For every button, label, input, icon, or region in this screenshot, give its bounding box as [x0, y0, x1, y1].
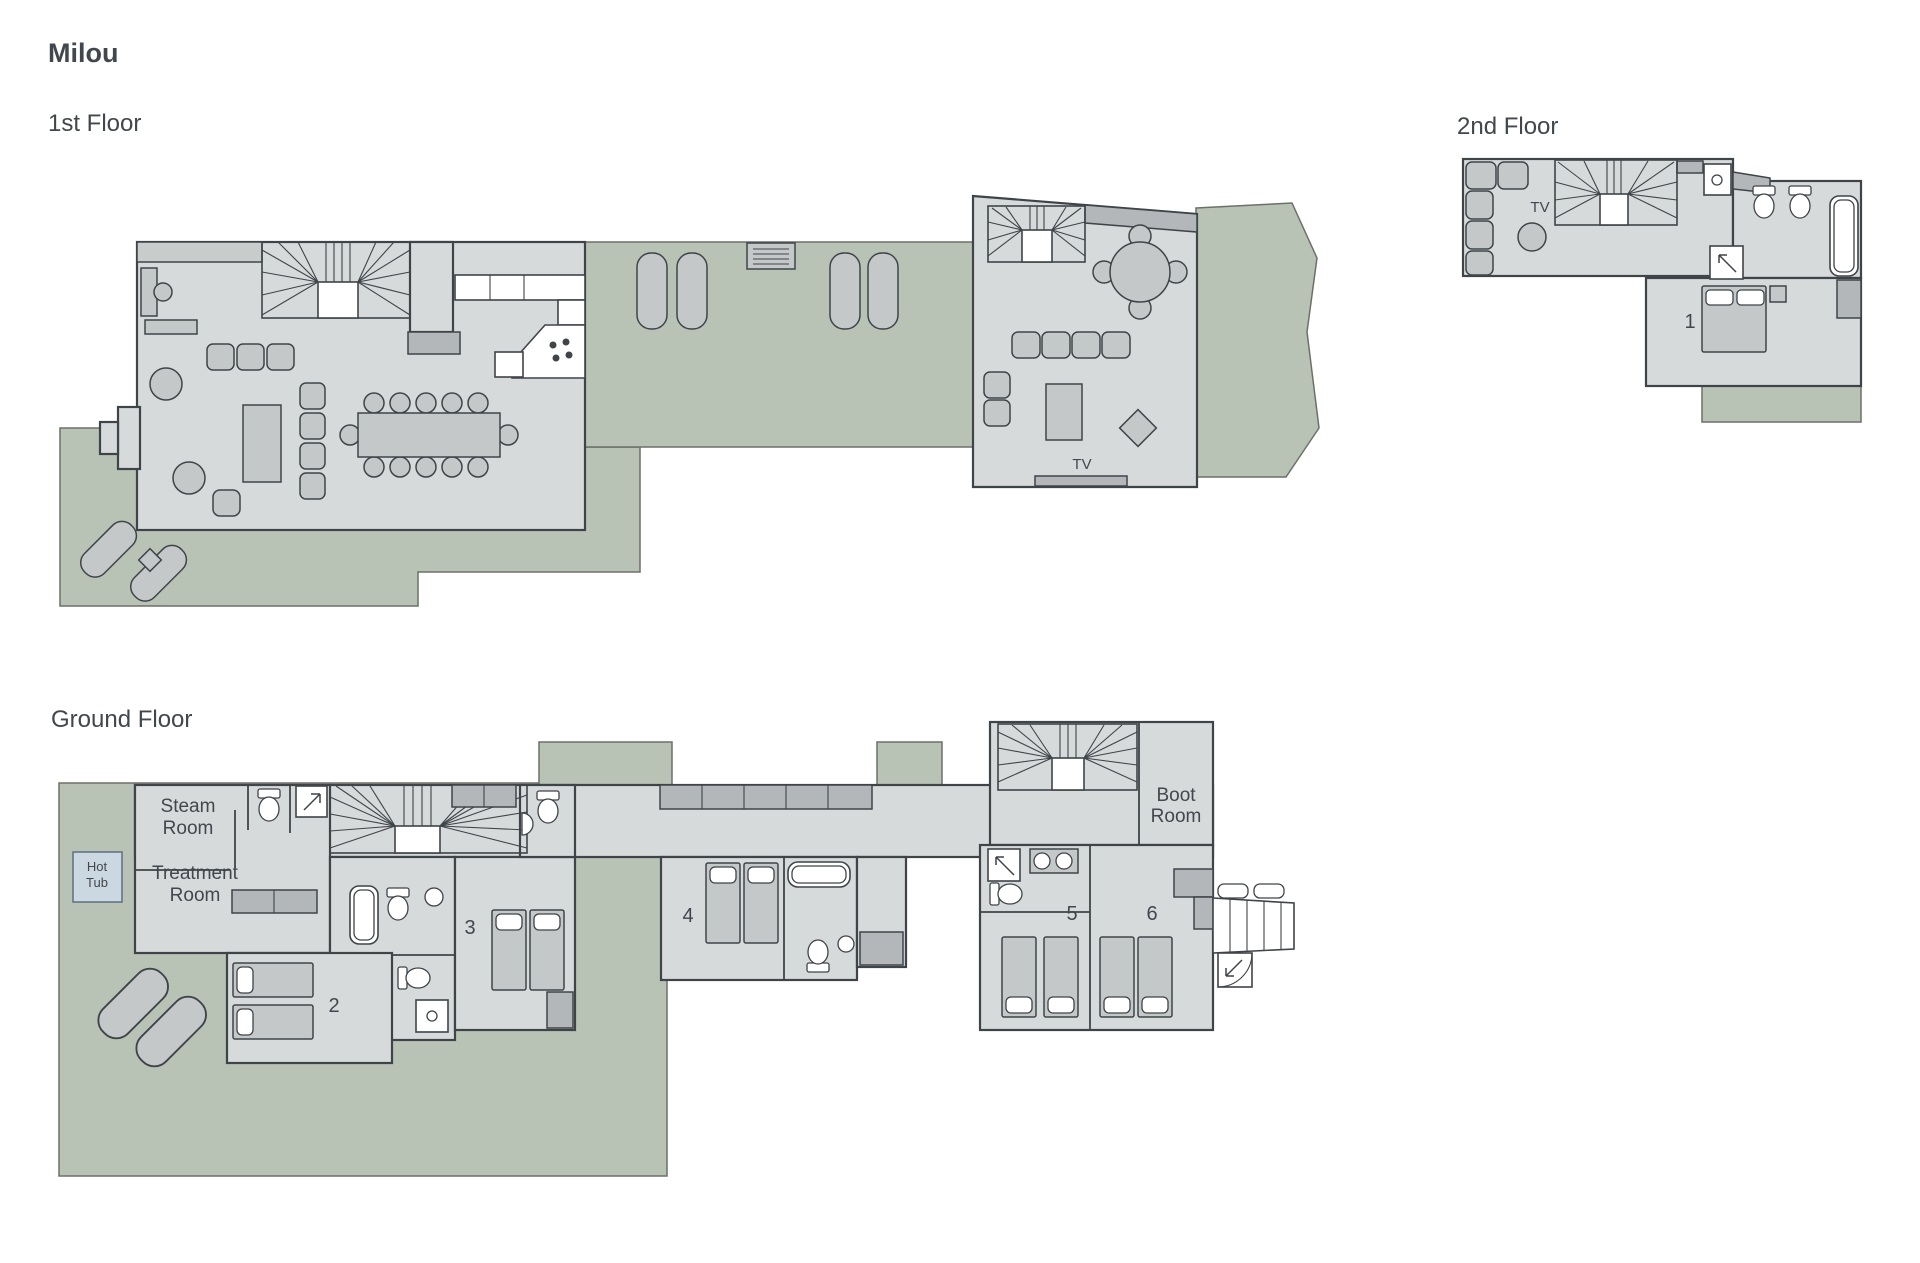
- shower-icon: [988, 849, 1020, 881]
- single-bed: [1044, 937, 1078, 1017]
- boot-room-label: Boot: [1156, 785, 1196, 806]
- treatment-room-label: Room: [170, 885, 221, 906]
- steam-room-label: Steam: [161, 796, 216, 817]
- wall-strip: [137, 242, 262, 262]
- bathtub-icon: [350, 886, 378, 944]
- sun-lounger: [830, 253, 860, 329]
- footstool: [213, 490, 240, 516]
- fireplace: [408, 332, 460, 354]
- shower-icon: [416, 1000, 448, 1032]
- single-bed: [233, 1005, 313, 1039]
- wardrobe: [860, 932, 903, 965]
- bedside-table: [1770, 286, 1786, 302]
- garden: [1196, 203, 1319, 477]
- entrance-door-icon: [1218, 953, 1252, 987]
- shower-icon: [296, 786, 327, 817]
- coffee-table: [243, 405, 281, 482]
- hearth-rug: [1035, 476, 1127, 486]
- toilet-icon: [537, 791, 559, 823]
- wall-strip: [1677, 161, 1703, 173]
- sink-icon: [425, 888, 443, 906]
- steam-room-label: Room: [163, 818, 214, 839]
- boot-room-label: Room: [1151, 806, 1202, 827]
- bedroom-number: 6: [1146, 903, 1157, 925]
- floorplan-canvas: Milou 1st Floor 2nd Floor Ground Floor: [0, 0, 1920, 1263]
- ground-floor-label: Ground Floor: [51, 706, 192, 733]
- single-bed: [233, 963, 313, 997]
- toilet-icon: [807, 940, 829, 972]
- armchair: [1518, 223, 1546, 251]
- tv-label: TV: [1072, 456, 1091, 473]
- bedroom-number: 3: [464, 917, 475, 939]
- hot-tub-label: Tub: [86, 875, 108, 890]
- single-bed: [530, 910, 564, 990]
- hot-tub: Hot Tub: [73, 852, 122, 902]
- toilet-icon: [1753, 186, 1775, 218]
- bedroom-number: 2: [328, 995, 339, 1017]
- single-bed: [744, 863, 778, 943]
- lightwell: [877, 742, 942, 785]
- bathtub-icon: [788, 862, 850, 887]
- single-bed: [1138, 937, 1172, 1017]
- single-bed: [492, 910, 526, 990]
- tv-unit: [1046, 384, 1082, 440]
- toilet-icon: [387, 888, 409, 920]
- armchair: [173, 462, 205, 494]
- single-bed: [706, 863, 740, 943]
- ground-floor-plan: Hot Tub Steam Room Treatment Room: [59, 722, 1294, 1176]
- bidet-icon: [1789, 186, 1811, 218]
- chimney-wall: [410, 242, 453, 332]
- single-bed: [1100, 937, 1134, 1017]
- wardrobe: [660, 785, 872, 809]
- bedroom-number: 1: [1684, 311, 1695, 333]
- bathtub-icon: [1830, 196, 1858, 276]
- sink-icon: [838, 936, 854, 952]
- page-title: Milou: [48, 38, 118, 68]
- kitchen-island: [495, 352, 523, 377]
- sofa: [207, 344, 294, 370]
- sun-lounger: [637, 253, 667, 329]
- wardrobe: [452, 785, 516, 807]
- bedroom-number: 4: [682, 905, 693, 927]
- wardrobe: [1837, 280, 1861, 318]
- entrance-steps: [1213, 884, 1294, 953]
- first-floor-label: 1st Floor: [48, 110, 141, 137]
- armchair: [150, 368, 182, 400]
- bay-window: [118, 407, 140, 469]
- toilet-icon: [258, 789, 280, 821]
- toilet-icon: [990, 883, 1022, 905]
- first-floor-plan: TV: [60, 196, 1319, 606]
- single-bed: [1002, 937, 1036, 1017]
- wardrobe: [547, 992, 573, 1028]
- sideboard: [145, 320, 197, 334]
- bay-window: [100, 422, 118, 454]
- shower-icon: [1710, 246, 1743, 279]
- sun-lounger: [868, 253, 898, 329]
- double-bed: [1702, 286, 1766, 352]
- desk-chair: [154, 283, 172, 301]
- lightwell: [539, 742, 672, 785]
- bedroom-number: 5: [1066, 903, 1077, 925]
- tv-label: TV: [1530, 199, 1549, 216]
- toilet-icon: [398, 967, 430, 989]
- treatment-room-label: Treatment: [152, 863, 239, 884]
- balcony: [1702, 386, 1861, 422]
- shower-icon: [1704, 164, 1731, 195]
- second-floor-plan: TV 1: [1463, 159, 1861, 422]
- sun-lounger: [677, 253, 707, 329]
- bbq-grill-icon: [747, 243, 795, 269]
- double-sink: [1030, 849, 1078, 873]
- second-floor-label: 2nd Floor: [1457, 113, 1558, 140]
- massage-table: [232, 890, 317, 913]
- hot-tub-label: Hot: [87, 859, 108, 874]
